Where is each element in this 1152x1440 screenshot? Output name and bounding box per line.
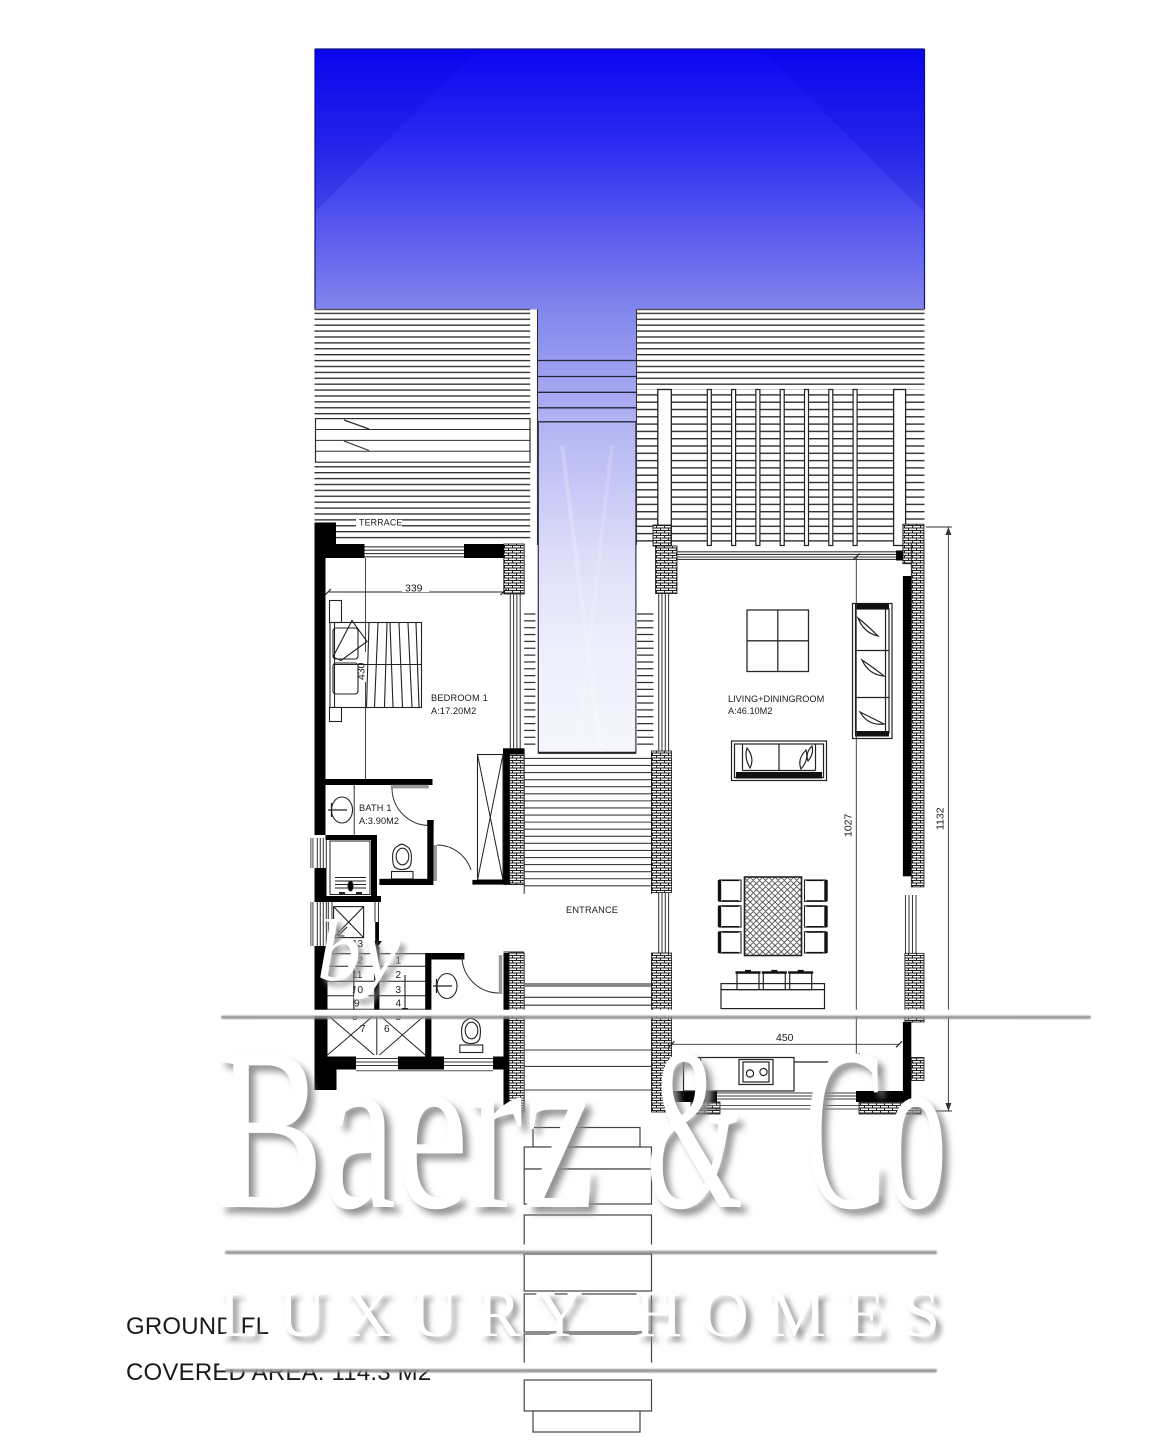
svg-text:339: 339 xyxy=(405,583,423,595)
svg-text:BEDROOM 1: BEDROOM 1 xyxy=(431,693,488,703)
svg-text:&: & xyxy=(646,1001,743,1258)
svg-text:LIVING+DININGROOM: LIVING+DININGROOM xyxy=(728,694,824,704)
svg-text:Baerz: Baerz xyxy=(215,1001,595,1258)
svg-text:A:46.10M2: A:46.10M2 xyxy=(728,706,772,716)
svg-text:ENTRANCE: ENTRANCE xyxy=(566,905,618,915)
svg-text:A:17.20M2: A:17.20M2 xyxy=(431,706,476,716)
svg-text:Co: Co xyxy=(804,1001,947,1258)
svg-text:450: 450 xyxy=(776,1032,794,1044)
svg-text:by: by xyxy=(317,903,401,1000)
svg-text:1027: 1027 xyxy=(843,813,855,837)
svg-text:TERRACE: TERRACE xyxy=(359,518,402,528)
svg-text:A:3.90M2: A:3.90M2 xyxy=(359,816,399,826)
svg-text:1132: 1132 xyxy=(935,807,947,830)
svg-text:LUXURY HOMES: LUXURY HOMES xyxy=(219,1278,940,1351)
svg-text:BATH 1: BATH 1 xyxy=(359,803,392,813)
